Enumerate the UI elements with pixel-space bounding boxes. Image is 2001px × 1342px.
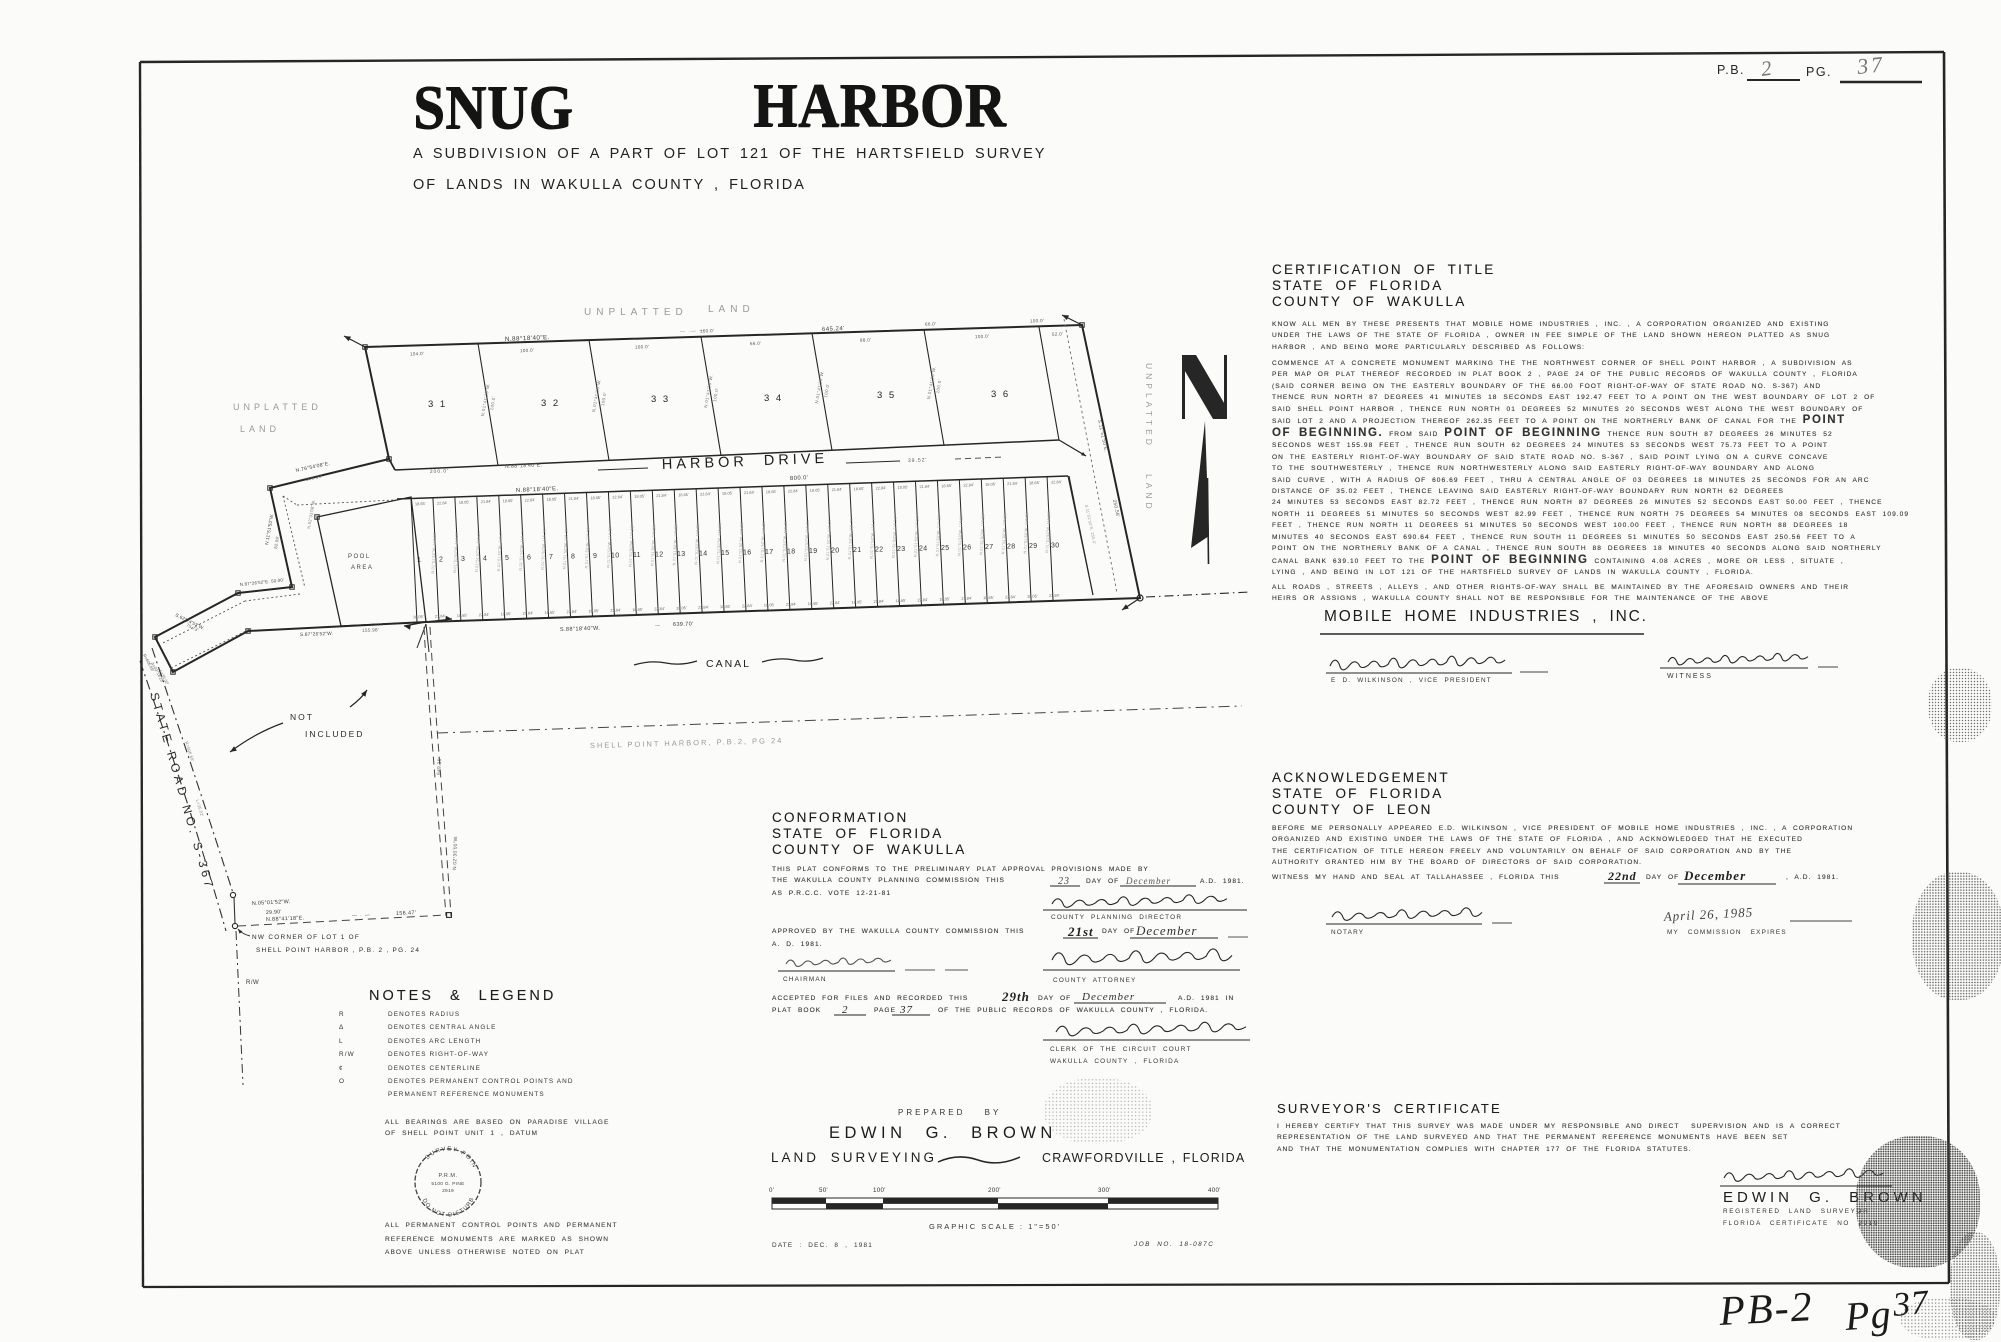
svg-text:21st: 21st [1067,924,1094,939]
svg-text:18.05': 18.05' [851,599,862,604]
svg-text:18.05': 18.05' [459,499,470,504]
svg-text:DRIVE: DRIVE [764,451,829,469]
svg-text:December: December [1135,923,1197,938]
svg-text:21: 21 [853,547,861,554]
svg-text:800.0': 800.0' [790,475,809,482]
svg-text:NOT: NOT [290,712,314,722]
svg-text:N.88°18'40"E.: N.88°18'40"E. [505,462,543,470]
svg-text:18.65': 18.65' [632,607,643,612]
svg-text:100.0': 100.0' [712,387,719,402]
svg-text:18.65': 18.65' [415,501,426,506]
svg-text:S.11°51'50"E.: S.11°51'50"E. [1096,419,1109,453]
svg-text:23: 23 [897,546,905,553]
svg-text:22.84': 22.84' [830,600,841,605]
svg-text:18.65': 18.65' [1029,480,1040,485]
svg-text:3 1: 3 1 [428,399,447,410]
svg-text:18.05': 18.05' [588,608,599,613]
svg-text:April 26, 1985: April 26, 1985 [1662,904,1753,924]
svg-text:N.88°41'18"E.: N.88°41'18"E. [266,915,305,923]
svg-text:4: 4 [483,556,487,563]
svg-text:100.0': 100.0' [1030,318,1044,324]
svg-text:29: 29 [1029,543,1037,550]
svg-text:5: 5 [505,555,509,562]
svg-text:3: 3 [461,556,465,563]
svg-text:26: 26 [963,545,971,552]
svg-text:21.84': 21.84' [656,493,667,498]
svg-text:18.65': 18.65' [590,495,601,500]
svg-text:21.84': 21.84' [1007,481,1018,486]
svg-text:3 4: 3 4 [764,393,783,404]
svg-text:639.70': 639.70' [673,621,694,628]
svg-text:S.11°51'50"E. 255.0': S.11°51'50"E. 255.0' [1084,504,1097,544]
svg-text:22.84': 22.84' [1051,479,1062,484]
svg-text:STATE ROAD NO. S-367: STATE ROAD NO. S-367 [147,691,217,892]
svg-text:December: December [1683,868,1746,883]
svg-text:18.65': 18.65' [457,612,468,617]
svg-text:N.88°18'40"E.: N.88°18'40"E. [516,486,559,494]
svg-text:N.05°01'52"W.: N.05°01'52"W. [252,899,291,907]
svg-text:2: 2 [439,557,443,564]
svg-text:December: December [1081,991,1135,1003]
svg-text:N.02°33'08"W.: N.02°33'08"W. [306,499,316,529]
svg-text:21.84': 21.84' [481,499,492,504]
svg-text:400': 400' [1208,1187,1221,1194]
svg-text:22.84': 22.84' [612,494,623,499]
svg-text:22.84': 22.84' [566,609,577,614]
svg-text:18: 18 [787,549,795,556]
svg-text:18.05': 18.05' [501,611,512,616]
svg-text:39.52': 39.52' [908,457,928,464]
svg-text:18.65': 18.65' [895,598,906,603]
svg-text:22.84': 22.84' [524,497,535,502]
svg-text:LAND: LAND [708,304,755,315]
svg-text:18.65': 18.65' [983,595,994,600]
svg-text:18.65': 18.65' [503,498,514,503]
svg-text:N.87°26'52"E. 50.00': N.87°26'52"E. 50.00' [240,577,285,587]
svg-text:88.0': 88.0' [860,337,872,342]
svg-text:22.84': 22.84' [875,485,886,490]
svg-text:3 2: 3 2 [541,398,560,409]
svg-text:18.05': 18.05' [722,490,733,495]
svg-text:22.84': 22.84' [963,482,974,487]
svg-text:22.84': 22.84' [1005,594,1016,599]
svg-text:NW CORNER OF LOT 1 OF: NW CORNER OF LOT 1 OF [252,934,360,941]
svg-text:100.0': 100.0' [700,328,714,334]
svg-text:18.65': 18.65' [941,483,952,488]
svg-text:18.05': 18.05' [764,602,775,607]
svg-text:18.05': 18.05' [676,605,687,610]
svg-text:200.0': 200.0' [430,468,449,475]
svg-text:66.0': 66.0' [925,321,937,326]
svg-text:R/W: R/W [246,980,259,986]
svg-text:52.0': 52.0' [1052,331,1064,336]
svg-text:18.05': 18.05' [413,614,424,619]
svg-text:22.84': 22.84' [788,488,799,493]
svg-text:UNPLATTED: UNPLATTED [584,307,688,318]
svg-text:66.0': 66.0' [750,341,762,346]
svg-text:21.84': 21.84' [832,487,843,492]
svg-text:POOL: POOL [348,554,371,560]
svg-text:12: 12 [655,552,663,559]
svg-text:100.0': 100.0' [520,348,534,354]
svg-text:2: 2 [842,1004,849,1016]
svg-text:200': 200' [988,1187,1001,1194]
svg-text:100.0': 100.0' [600,392,607,407]
svg-text:PG.: PG. [1806,65,1832,79]
svg-text:100.0': 100.0' [635,344,649,350]
svg-text:18.05': 18.05' [546,496,557,501]
svg-text:22: 22 [875,547,883,554]
svg-text:UNPLATTED: UNPLATTED [233,402,322,412]
svg-text:22.84': 22.84' [437,500,448,505]
svg-text:30: 30 [1051,543,1059,550]
svg-text:21.84': 21.84' [522,610,533,615]
svg-text:AREA: AREA [351,565,373,571]
svg-text:SHELL POINT HARBOR , P.B. 2 ,: SHELL POINT HARBOR , P.B. 2 , PG. 24 [256,947,420,954]
svg-text:S.88°18'40"W.: S.88°18'40"W. [560,626,601,633]
svg-text:N.11°51'50"W.: N.11°51'50"W. [264,513,274,545]
svg-text:37: 37 [899,1004,913,1016]
svg-text:SHELL POINT HARBOR, P.B.2, PG: SHELL POINT HARBOR, P.B.2, PG 24 [590,736,784,750]
svg-text:28: 28 [1007,544,1015,551]
svg-text:21.84': 21.84' [610,607,621,612]
svg-text:7: 7 [549,554,553,561]
svg-text:649.35': 649.35' [436,757,443,775]
svg-text:Pg: Pg [1842,1291,1892,1339]
svg-text:2: 2 [1759,56,1774,81]
svg-text:100': 100' [873,1187,886,1194]
svg-text:19: 19 [809,548,817,555]
svg-text:6: 6 [527,555,531,562]
svg-text:CANAL: CANAL [706,658,751,670]
svg-text:20: 20 [831,548,839,555]
svg-text:21.84': 21.84' [698,604,709,609]
svg-text:21.84': 21.84' [961,596,972,601]
svg-text:156.47': 156.47' [396,910,417,917]
svg-text:82.99': 82.99' [273,535,280,549]
svg-text:P.R.M.: P.R.M. [438,1173,457,1179]
svg-text:DO NOT DISTURB: DO NOT DISTURB [421,1196,476,1218]
svg-text:13: 13 [677,551,685,558]
svg-text:18.05': 18.05' [810,487,821,492]
svg-text:14: 14 [699,551,707,558]
svg-text:18.05': 18.05' [1027,593,1038,598]
svg-text:17: 17 [765,549,773,556]
svg-text:8: 8 [571,554,575,561]
svg-text:18.05': 18.05' [985,481,996,486]
svg-text:18.65': 18.65' [853,486,864,491]
svg-text:9: 9 [593,553,597,560]
svg-text:3 3: 3 3 [651,394,670,405]
svg-text:10: 10 [611,553,619,560]
svg-text:3 6: 3 6 [991,389,1010,400]
svg-text:5100 G. PINE: 5100 G. PINE [431,1181,464,1187]
svg-text:18.65': 18.65' [766,489,777,494]
svg-text:300': 300' [1098,1187,1111,1194]
svg-text:37: 37 [1855,51,1886,79]
svg-text:50': 50' [819,1187,828,1194]
svg-text:11: 11 [633,552,641,559]
svg-text:21.84': 21.84' [744,490,755,495]
svg-text:UNPLATTED: UNPLATTED [1144,363,1154,449]
svg-text:100.0': 100.0' [975,334,989,340]
svg-text:21.84': 21.84' [568,496,579,501]
svg-text:LAND: LAND [1144,474,1154,513]
svg-text:100.0': 100.0' [489,396,496,411]
svg-text:109.09': 109.09' [305,474,323,482]
svg-text:16: 16 [743,550,751,557]
svg-text:22.84': 22.84' [917,597,928,602]
svg-text:155.98': 155.98' [362,627,379,634]
svg-text:15: 15 [721,550,729,557]
svg-text:21.84': 21.84' [786,601,797,606]
svg-text:21.84': 21.84' [919,484,930,489]
svg-text:100.0': 100.0' [823,383,830,398]
svg-text:PB-2: PB-2 [1717,1284,1815,1335]
svg-text:18.05': 18.05' [634,493,645,498]
svg-text:N.76°54'08"E.: N.76°54'08"E. [295,461,331,474]
svg-text:3 5: 3 5 [877,390,896,401]
svg-text:18.65': 18.65' [544,610,555,615]
svg-text:—: — [655,623,661,629]
svg-text:2919: 2919 [442,1188,454,1194]
svg-text:18.65': 18.65' [678,492,689,497]
svg-text:21.84': 21.84' [1049,593,1060,598]
svg-text:22.84': 22.84' [479,612,490,617]
svg-text:29th: 29th [1001,989,1030,1004]
svg-text:21.84': 21.84' [435,613,446,618]
svg-text:100.0': 100.0' [935,379,942,394]
svg-text:18.05': 18.05' [897,484,908,489]
svg-text:25: 25 [941,545,949,552]
svg-text:22.84': 22.84' [654,606,665,611]
svg-text:P.B.: P.B. [1717,63,1745,77]
svg-text:INCLUDED: INCLUDED [305,729,364,739]
svg-text:LAND: LAND [240,424,280,434]
svg-text:104.0': 104.0' [410,351,424,357]
svg-text:R=606.69': R=606.69' [184,741,195,762]
svg-text:645.24': 645.24' [822,326,845,333]
svg-text:18.05': 18.05' [939,596,950,601]
svg-text:29.90': 29.90' [266,909,282,916]
svg-text:N.02°30'00"W.: N.02°30'00"W. [452,835,459,870]
svg-text:18.65': 18.65' [720,604,731,609]
svg-text:21.84': 21.84' [873,598,884,603]
svg-text:18.65': 18.65' [808,601,819,606]
svg-text:27: 27 [985,544,993,551]
svg-text:S.87°26'52"W.: S.87°26'52"W. [300,631,333,638]
svg-text:22.84': 22.84' [700,491,711,496]
svg-text:HARBOR: HARBOR [662,454,749,473]
svg-text:22nd: 22nd [1607,869,1637,883]
svg-text:— · —: — · — [352,913,371,919]
svg-text:24: 24 [919,546,927,553]
svg-text:22.84': 22.84' [742,603,753,608]
svg-text:0': 0' [769,1187,774,1194]
